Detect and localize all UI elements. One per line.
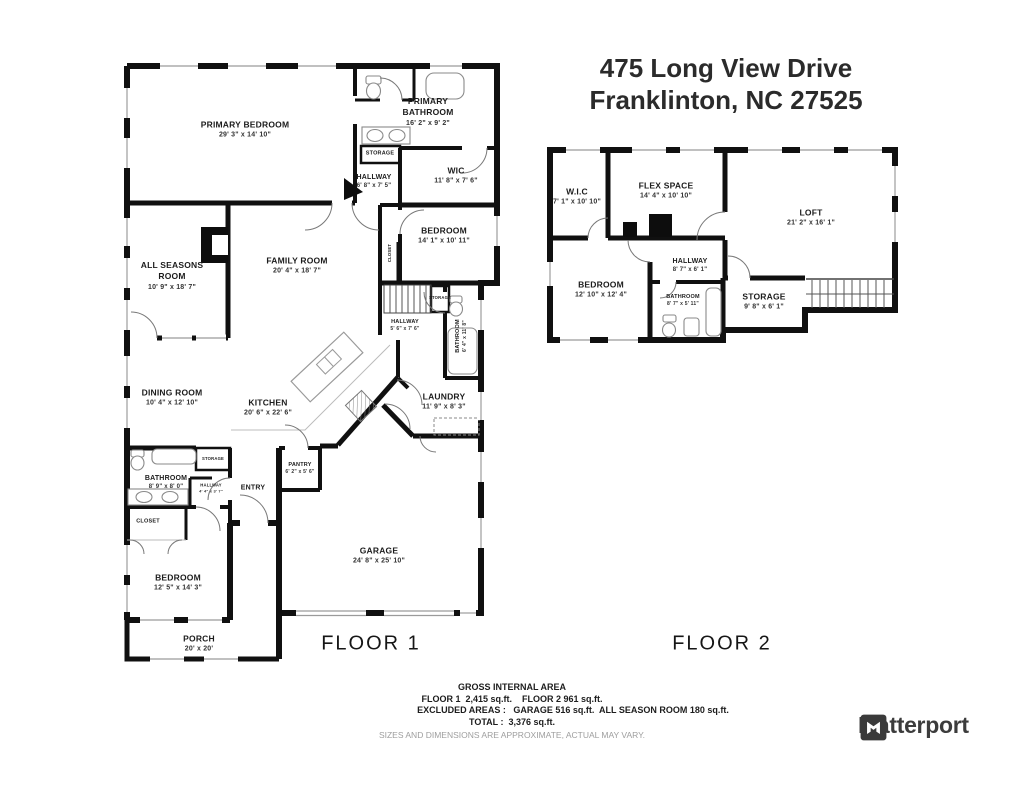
matterport-logo: Matterport xyxy=(858,712,969,739)
area-summary: GROSS INTERNAL AREA FLOOR 1 2,415 sq.ft.… xyxy=(356,682,668,742)
matterport-m-icon xyxy=(858,712,889,743)
floor2-caption: FLOOR 2 xyxy=(672,633,772,656)
address-line1: 475 Long View Drive xyxy=(589,52,862,84)
floor1-caption: FLOOR 1 xyxy=(321,633,421,656)
floor-areas: FLOOR 1 2,415 sq.ft. FLOOR 2 961 sq.ft. xyxy=(356,694,668,706)
room-label: HALLWAY8' 7" x 6' 1" xyxy=(673,257,708,275)
gross-area-title: GROSS INTERNAL AREA xyxy=(356,682,668,694)
room-label: BATHROOM8' 7" x 5' 11" xyxy=(666,294,700,308)
room-label: W.I.C7' 1" x 10' 10" xyxy=(553,187,601,208)
room-label: FLEX SPACE14' 4" x 10' 10" xyxy=(639,181,694,202)
room-label: STORAGE9' 8" x 6' 1" xyxy=(742,292,785,313)
room-label: BEDROOM12' 10" x 12' 4" xyxy=(575,280,627,301)
disclaimer: SIZES AND DIMENSIONS ARE APPROXIMATE, AC… xyxy=(356,730,668,742)
address-line2: Franklinton, NC 27525 xyxy=(589,84,862,116)
floorplan-page: PRIMARY BEDROOM29' 3" x 14' 10"PRIMARY B… xyxy=(0,0,1024,791)
page-title: 475 Long View Drive Franklinton, NC 2752… xyxy=(589,52,862,116)
excluded-areas: EXCLUDED AREAS : GARAGE 516 sq.ft. ALL S… xyxy=(417,705,729,717)
total-area: TOTAL : 3,376 sq.ft. xyxy=(356,717,668,729)
room-label: LOFT21' 2" x 16' 1" xyxy=(787,208,835,229)
floor2-labels: W.I.C7' 1" x 10' 10"FLEX SPACE14' 4" x 1… xyxy=(0,0,1024,791)
